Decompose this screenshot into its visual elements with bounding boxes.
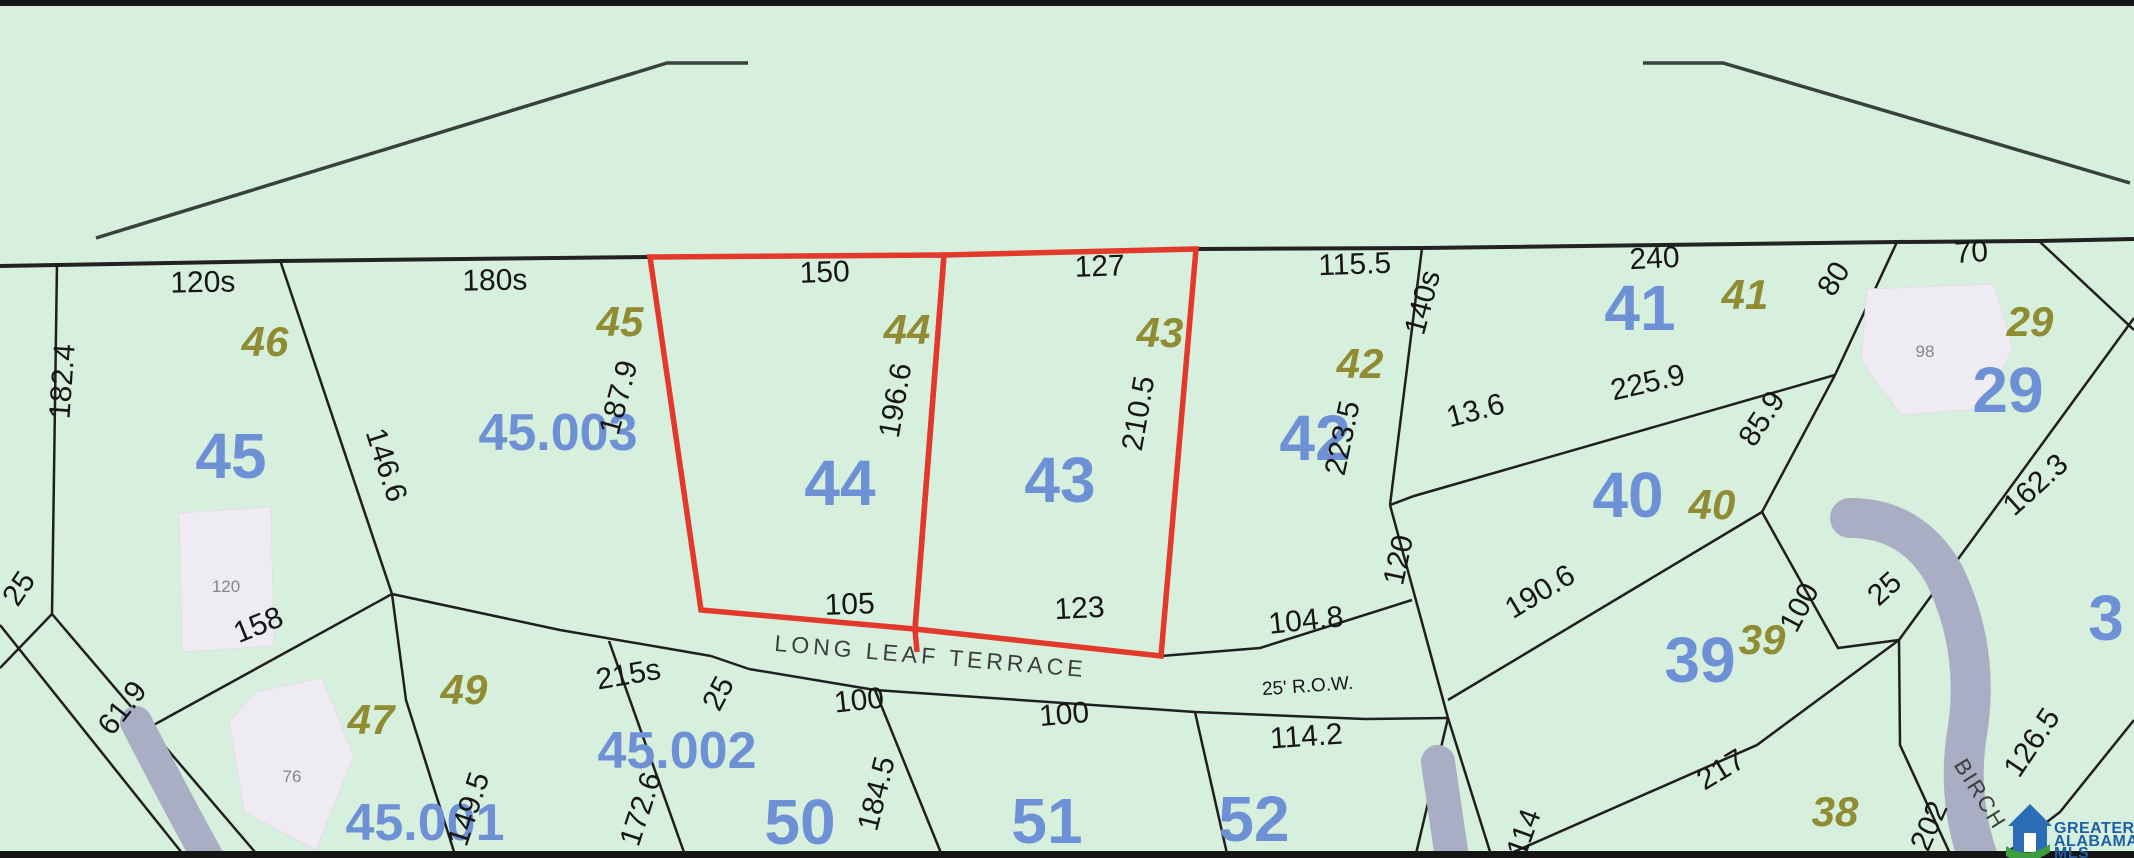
dimension-label: 182.4 bbox=[43, 343, 81, 420]
lot-number-blue: 41 bbox=[1604, 272, 1675, 344]
dimension-label: 180s bbox=[462, 263, 528, 297]
lot-number-blue: 44 bbox=[804, 447, 876, 519]
lot-number-olive: 29 bbox=[2006, 298, 2054, 345]
lot-number-olive: 41 bbox=[1721, 271, 1769, 318]
dimension-label: 114.2 bbox=[1269, 718, 1344, 756]
dimension-label: 120s bbox=[170, 265, 236, 299]
dimension-label: 100 bbox=[832, 682, 885, 720]
lot-number-blue: 52 bbox=[1218, 783, 1289, 855]
lot-number-blue: 3 bbox=[2088, 582, 2124, 654]
lot-number-blue: 45 bbox=[195, 420, 266, 492]
bottom-border bbox=[0, 851, 2134, 858]
lot-number-olive: 45 bbox=[596, 298, 644, 345]
dimension-label: 70 bbox=[1954, 235, 1990, 270]
lot-number-blue: 39 bbox=[1664, 624, 1735, 696]
lot-number-olive: 47 bbox=[347, 696, 396, 743]
plat-map-canvas: 45 44 43 42 41 40 39 29 50 51 52 3 45.00… bbox=[0, 0, 2134, 858]
lot-number-olive: 42 bbox=[1336, 340, 1384, 387]
dimension-label: 240 bbox=[1629, 241, 1681, 277]
road-driveway-center bbox=[1438, 762, 1452, 858]
house-number: 120 bbox=[212, 577, 240, 596]
lot-number-olive: 43 bbox=[1136, 309, 1184, 356]
dimension-label: 150 bbox=[799, 255, 850, 290]
house-number: 76 bbox=[283, 767, 302, 786]
lot-number-olive: 38 bbox=[1812, 788, 1859, 835]
dimension-label: 115.5 bbox=[1318, 247, 1392, 283]
lot-number-olive: 46 bbox=[241, 318, 289, 365]
logo-text-line3: MLS bbox=[2054, 845, 2089, 858]
lot-number-blue: 50 bbox=[764, 786, 835, 858]
lot-number-blue: 43 bbox=[1024, 444, 1095, 516]
dimension-label: 127 bbox=[1074, 249, 1125, 284]
lot-number-blue: 51 bbox=[1011, 785, 1082, 857]
lot-number-olive: 40 bbox=[1688, 481, 1736, 528]
dimension-label: 123 bbox=[1054, 591, 1106, 627]
house-number: 98 bbox=[1916, 342, 1935, 361]
top-border bbox=[0, 0, 2134, 6]
lot-number-blue: 40 bbox=[1592, 459, 1663, 531]
dimension-label: 105 bbox=[824, 587, 875, 622]
dimension-label: 100 bbox=[1038, 696, 1091, 733]
lot-number-olive: 44 bbox=[883, 306, 931, 353]
parcel-id: 45.002 bbox=[597, 722, 756, 780]
plat-map: 45 44 43 42 41 40 39 29 50 51 52 3 45.00… bbox=[0, 0, 2134, 858]
lot-number-blue: 29 bbox=[1972, 354, 2043, 426]
logo-house-door-icon bbox=[2024, 833, 2036, 852]
lot-number-olive: 49 bbox=[440, 666, 488, 713]
